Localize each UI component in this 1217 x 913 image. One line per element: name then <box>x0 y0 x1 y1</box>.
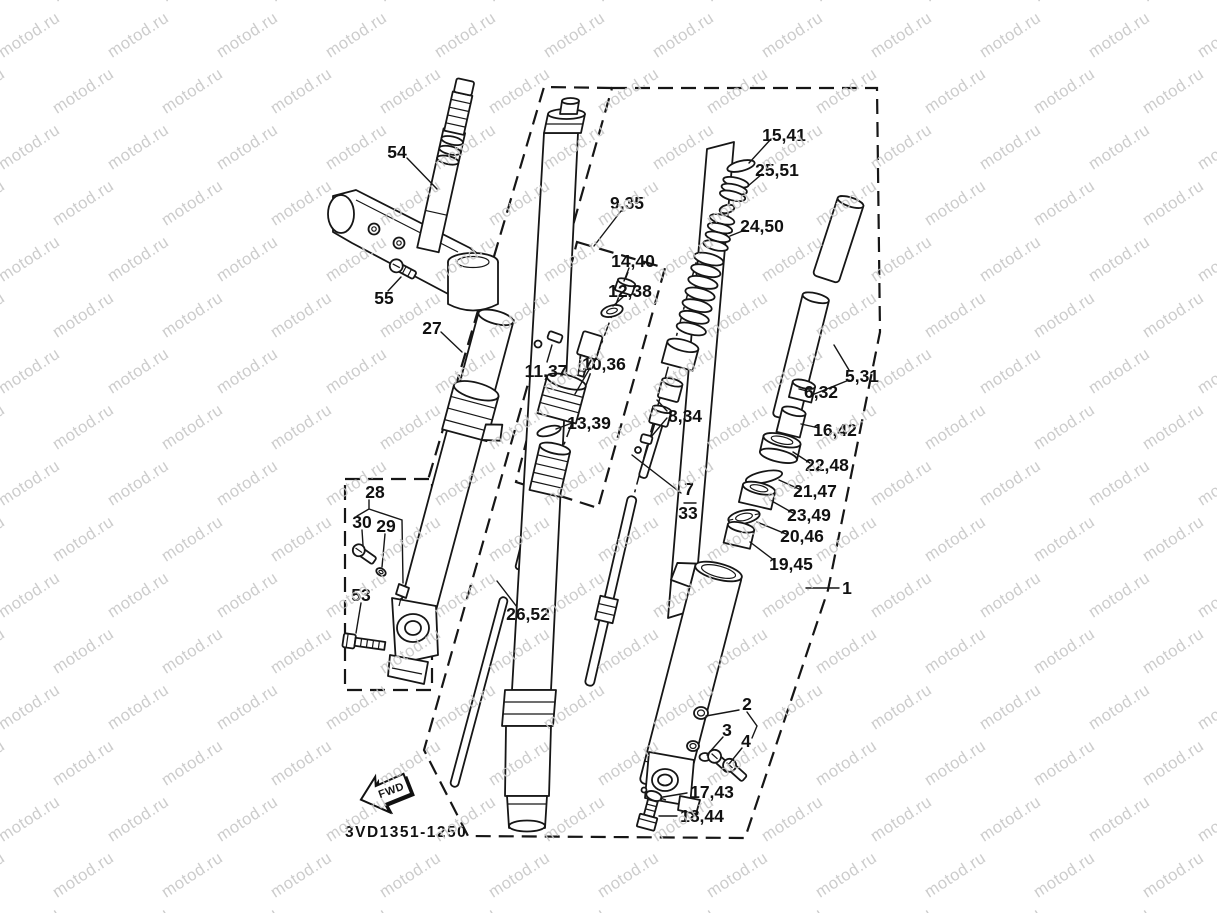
exploded-fork-diagram: 54 55 27 28 30 29 53 26,52 9,35 14,40 12… <box>0 0 1217 913</box>
parts-diagram-page: 54 55 27 28 30 29 53 26,52 9,35 14,40 12… <box>0 0 1217 913</box>
lower-triple-clamp <box>328 190 498 311</box>
rebound-spring-collar <box>658 376 684 402</box>
fork-tube-cover-lower <box>772 290 830 422</box>
part-label-27: 27 <box>422 318 441 338</box>
part-label-15-41: 15,41 <box>762 125 806 145</box>
part-label-20-46: 20,46 <box>780 526 824 546</box>
part-label-24-50: 24,50 <box>740 216 784 236</box>
part-label-17-43: 17,43 <box>690 782 734 802</box>
part-label-6-32: 6,32 <box>804 382 838 402</box>
part-label-55: 55 <box>374 288 394 308</box>
part-label-2: 2 <box>742 694 752 714</box>
part-label-21-47: 21,47 <box>793 481 837 501</box>
oil-seal <box>739 479 776 509</box>
part-label-54: 54 <box>387 142 407 162</box>
bracket-washer <box>375 566 387 577</box>
part-label-5-31: 5,31 <box>845 366 879 386</box>
axle-bracket-left <box>388 598 438 684</box>
part-label-14-40: 14,40 <box>611 251 655 271</box>
part-label-18-44: 18,44 <box>680 806 724 826</box>
damper-rod-lower <box>450 596 508 787</box>
part-label-7: 7 <box>684 479 694 499</box>
part-label-16-42: 16,42 <box>813 420 857 440</box>
fork-tube-cover-upper <box>813 194 865 284</box>
part-label-4: 4 <box>741 731 751 751</box>
part-label-11-37: 11,37 <box>525 361 568 381</box>
part-label-26-52: 26,52 <box>506 604 550 624</box>
piston-rod-lower <box>580 494 641 687</box>
part-label-19-45: 19,45 <box>769 554 813 574</box>
part-label-28: 28 <box>365 482 385 502</box>
drain-bolt <box>637 798 662 831</box>
part-label-30: 30 <box>352 512 372 532</box>
part-label-25-51: 25,51 <box>755 160 799 180</box>
pinch-bolt-b <box>720 756 748 783</box>
part-label-3: 3 <box>722 720 732 740</box>
fork-outer-tube-left <box>390 305 532 639</box>
part-label-8-34: 8,34 <box>668 406 702 426</box>
part-label-13-39: 13,39 <box>567 413 611 433</box>
part-label-29: 29 <box>376 516 396 536</box>
bracket-screw <box>350 542 377 566</box>
fwd-arrow: FWD <box>356 768 418 822</box>
small-spacer <box>640 434 653 445</box>
part-label-10-36: 10,36 <box>582 354 626 374</box>
part-label-1: 1 <box>842 578 852 598</box>
part-label-9-35: 9,35 <box>610 193 644 213</box>
axle-pinch-bolt <box>342 633 386 653</box>
small-bead <box>635 447 641 453</box>
steering-stem <box>417 78 476 253</box>
part-label-53: 53 <box>351 585 371 605</box>
drawing-code: 3VD1351-1250 <box>345 824 467 841</box>
part-label-33: 33 <box>678 503 698 523</box>
part-label-22-48: 22,48 <box>805 455 849 475</box>
part-label-12-38: 12,38 <box>608 281 652 301</box>
dust-seal <box>724 520 756 549</box>
part-label-23-49: 23,49 <box>787 505 831 525</box>
